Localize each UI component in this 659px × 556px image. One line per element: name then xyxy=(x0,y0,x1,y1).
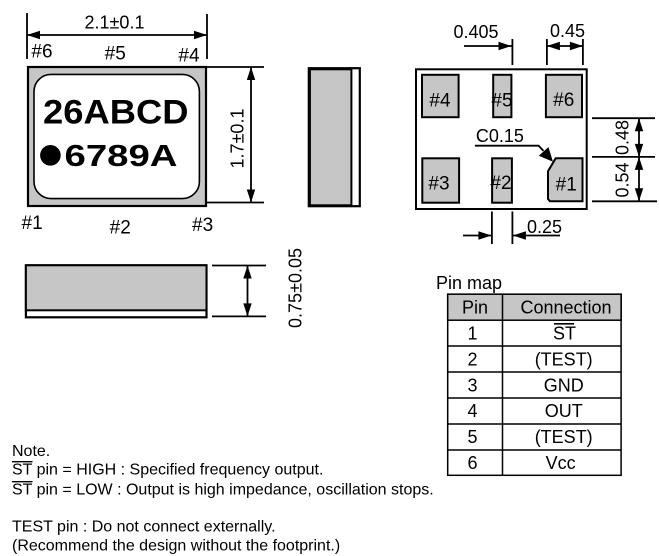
svg-text:2: 2 xyxy=(467,349,477,369)
svg-text:GND: GND xyxy=(544,375,584,395)
svg-text:Note.: Note. xyxy=(12,443,50,460)
svg-text:#1: #1 xyxy=(22,213,43,234)
svg-text:#4: #4 xyxy=(429,91,451,112)
svg-text:0.45: 0.45 xyxy=(550,21,585,41)
svg-text:TEST pin : Do not connect exte: TEST pin : Do not connect externally. xyxy=(12,519,276,536)
svg-text:ST pin = HIGH : Specified freq: ST pin = HIGH : Specified frequency outp… xyxy=(12,462,323,479)
svg-text:3: 3 xyxy=(467,375,477,395)
svg-text:0.25: 0.25 xyxy=(527,217,562,237)
svg-text:#6: #6 xyxy=(553,90,574,111)
svg-text:#3: #3 xyxy=(192,215,213,236)
svg-text:Vcc: Vcc xyxy=(546,453,576,473)
svg-text:1.7±0.1: 1.7±0.1 xyxy=(228,109,248,169)
svg-text:C0.15: C0.15 xyxy=(476,126,524,146)
svg-text:5: 5 xyxy=(467,427,477,447)
svg-text:ST: ST xyxy=(553,324,576,344)
svg-text:#1: #1 xyxy=(556,175,577,196)
svg-text:0.48: 0.48 xyxy=(613,120,633,155)
svg-text:#2: #2 xyxy=(110,218,131,239)
svg-text:Pin map: Pin map xyxy=(436,273,502,293)
svg-text:#6: #6 xyxy=(31,41,52,62)
svg-text:26ABCD: 26ABCD xyxy=(43,94,189,132)
svg-text:Pin: Pin xyxy=(462,298,488,318)
svg-text:#2: #2 xyxy=(490,173,511,194)
svg-text:OUT: OUT xyxy=(545,401,583,421)
svg-text:(TEST): (TEST) xyxy=(535,427,593,447)
svg-text:(Recommend the design without: (Recommend the design without the footpr… xyxy=(12,538,340,555)
svg-text:#5: #5 xyxy=(491,91,512,112)
svg-text:6: 6 xyxy=(467,453,477,473)
svg-text:1: 1 xyxy=(467,324,477,344)
svg-text:Connection: Connection xyxy=(520,298,611,318)
svg-text:4: 4 xyxy=(467,401,477,421)
svg-text:0.405: 0.405 xyxy=(453,22,498,42)
svg-text:#3: #3 xyxy=(428,174,449,195)
svg-text:0.75±0.05: 0.75±0.05 xyxy=(286,248,306,328)
svg-text:#5: #5 xyxy=(105,44,126,65)
svg-text:6789A: 6789A xyxy=(65,138,178,173)
svg-text:2.1±0.1: 2.1±0.1 xyxy=(85,13,145,33)
svg-text:#4: #4 xyxy=(178,46,200,67)
svg-text:ST pin = LOW : Output is high: ST pin = LOW : Output is high impedance,… xyxy=(12,482,434,499)
svg-text:0.54: 0.54 xyxy=(613,162,633,197)
svg-text:(TEST): (TEST) xyxy=(535,349,593,369)
